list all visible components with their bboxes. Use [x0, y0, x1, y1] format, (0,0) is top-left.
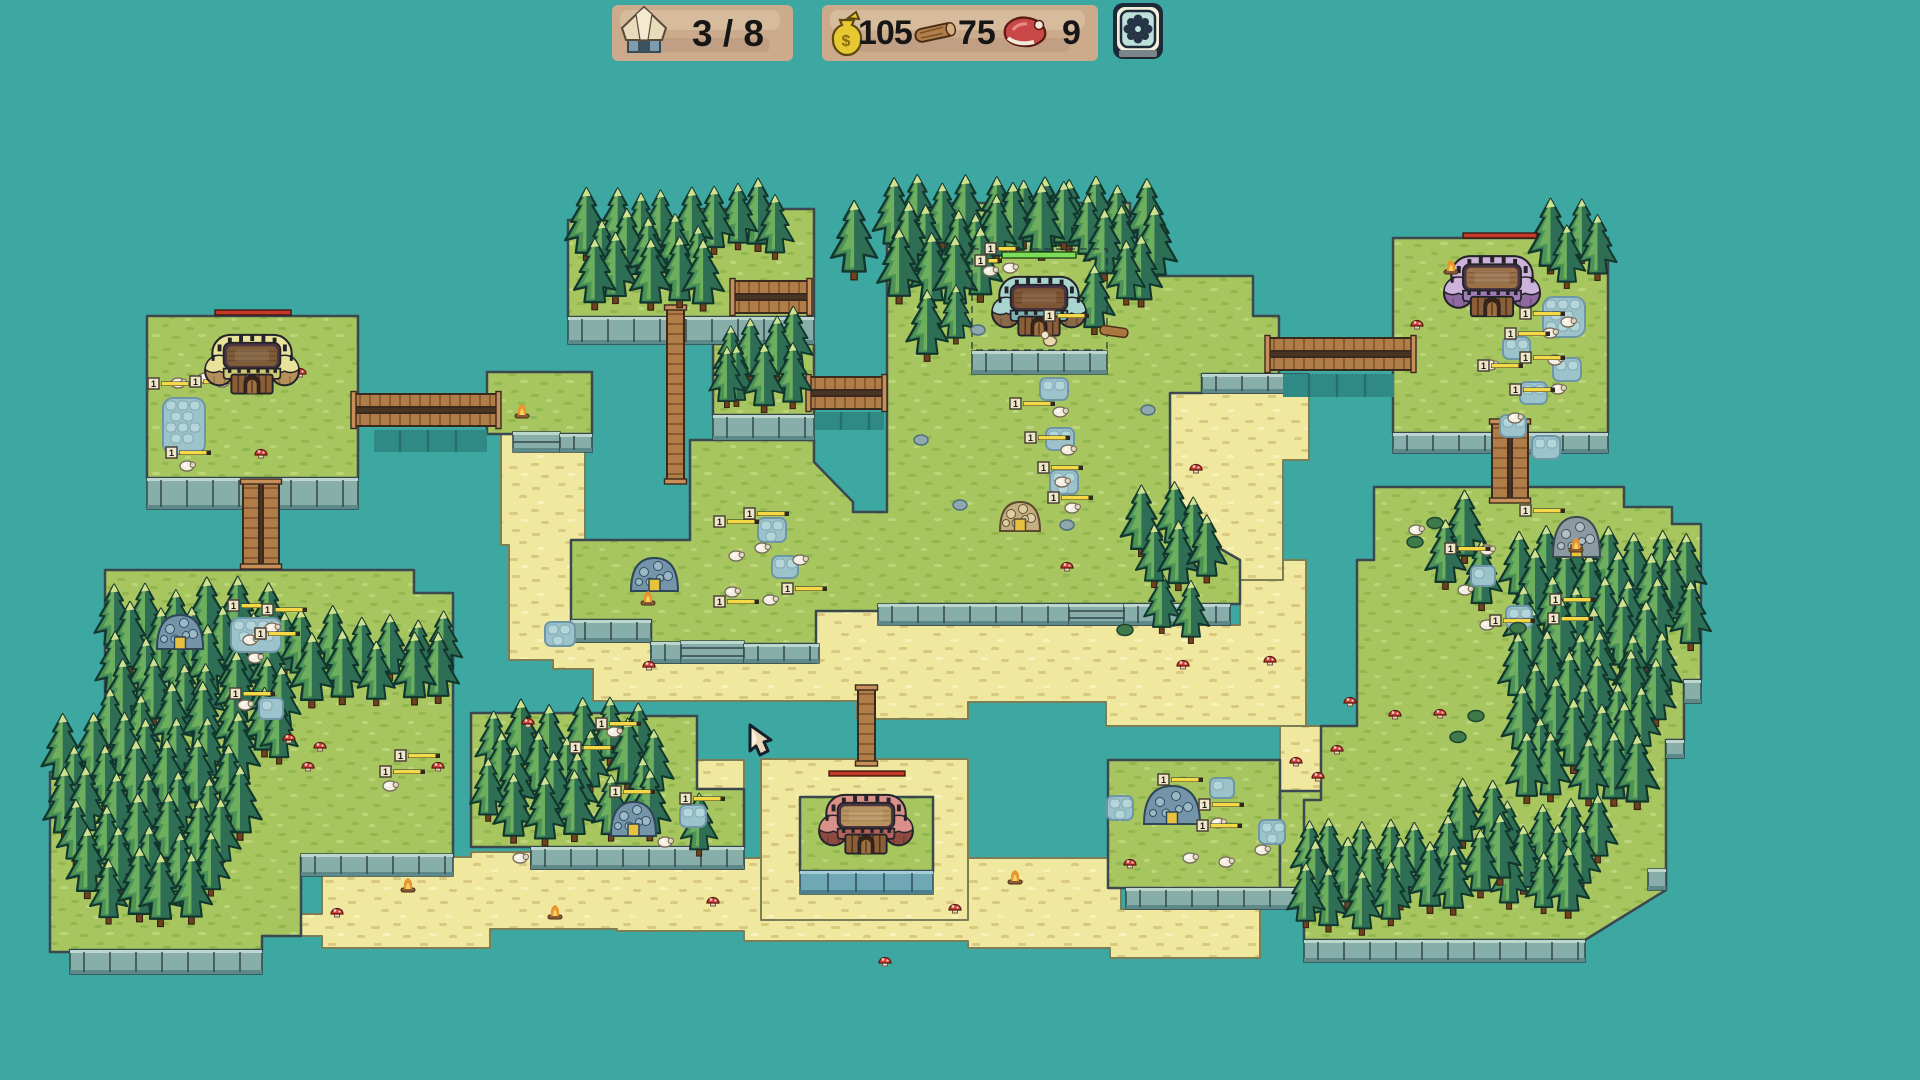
svg-text:105: 105: [858, 14, 912, 52]
svg-text:1: 1: [1493, 616, 1498, 626]
svg-text:1: 1: [1028, 433, 1033, 443]
svg-text:3 / 8: 3 / 8: [692, 13, 764, 54]
svg-text:1: 1: [151, 379, 156, 389]
svg-text:1: 1: [1161, 775, 1166, 785]
svg-text:1: 1: [233, 689, 238, 699]
svg-text:1: 1: [978, 256, 983, 266]
svg-text:1: 1: [1481, 361, 1486, 371]
svg-text:1: 1: [717, 517, 722, 527]
svg-text:1: 1: [231, 601, 236, 611]
svg-text:9: 9: [1062, 14, 1081, 52]
svg-text:1: 1: [785, 584, 790, 594]
svg-text:1: 1: [717, 597, 722, 607]
svg-text:1: 1: [1513, 385, 1518, 395]
svg-text:1: 1: [1523, 353, 1528, 363]
svg-text:1: 1: [1508, 329, 1513, 339]
svg-text:1: 1: [169, 448, 174, 458]
svg-text:1: 1: [613, 787, 618, 797]
svg-text:1: 1: [1553, 595, 1558, 605]
svg-text:1: 1: [1202, 800, 1207, 810]
svg-text:1: 1: [258, 629, 263, 639]
svg-text:1: 1: [1448, 544, 1453, 554]
svg-text:1: 1: [398, 751, 403, 761]
svg-text:1: 1: [1041, 463, 1046, 473]
svg-text:1: 1: [1523, 506, 1528, 516]
svg-text:1: 1: [573, 743, 578, 753]
svg-text:1: 1: [1013, 399, 1018, 409]
svg-text:1: 1: [1200, 821, 1205, 831]
svg-text:1: 1: [1551, 614, 1556, 624]
svg-text:1: 1: [193, 377, 198, 387]
svg-text:75: 75: [958, 14, 996, 52]
svg-text:1: 1: [1523, 309, 1528, 319]
svg-text:1: 1: [599, 719, 604, 729]
svg-text:1: 1: [683, 794, 688, 804]
svg-text:1: 1: [265, 605, 270, 615]
svg-text:1: 1: [1047, 311, 1052, 321]
svg-text:$: $: [842, 33, 851, 50]
svg-text:1: 1: [747, 509, 752, 519]
svg-text:1: 1: [1051, 493, 1056, 503]
svg-text:1: 1: [383, 767, 388, 777]
svg-text:1: 1: [988, 244, 993, 254]
